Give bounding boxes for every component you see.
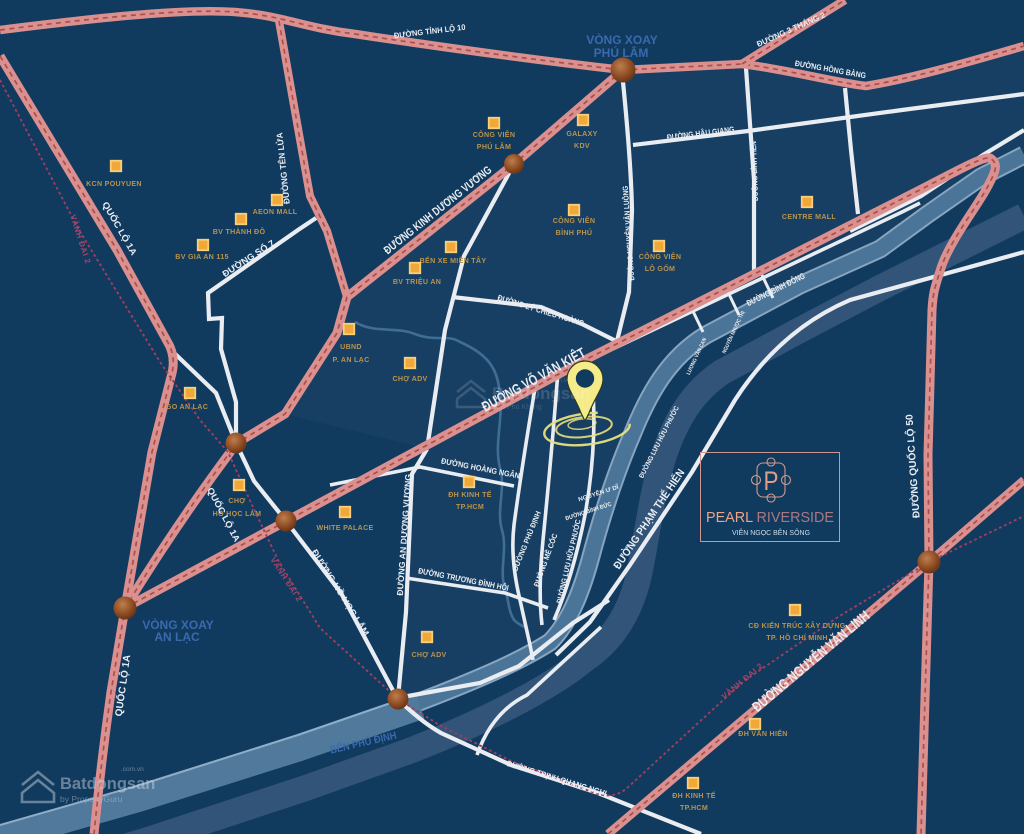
svg-text:UBND: UBND (340, 343, 362, 351)
svg-text:Batdongsan: Batdongsan (60, 775, 155, 793)
svg-text:VIÊN NGỌC BÊN SÔNG: VIÊN NGỌC BÊN SÔNG (732, 528, 810, 537)
svg-text:P. AN LẠC: P. AN LẠC (333, 356, 370, 364)
svg-text:by PropertyGuru: by PropertyGuru (60, 794, 123, 804)
svg-text:ĐH VĂN HIẾN: ĐH VĂN HIẾN (738, 728, 787, 738)
svg-text:BV THÀNH ĐÔ: BV THÀNH ĐÔ (213, 227, 266, 236)
svg-text:BÌNH PHÚ: BÌNH PHÚ (556, 228, 593, 237)
svg-text:LÔ GỐM: LÔ GỐM (645, 263, 676, 273)
svg-text:BV GIA AN 115: BV GIA AN 115 (175, 253, 228, 261)
svg-text:TP.HCM: TP.HCM (680, 804, 708, 812)
svg-text:CÔNG VIÊN: CÔNG VIÊN (553, 216, 596, 225)
svg-text:P: P (764, 466, 779, 496)
svg-text:PEARL RIVERSIDE: PEARL RIVERSIDE (706, 509, 834, 526)
svg-text:.com.vn: .com.vn (121, 766, 144, 773)
svg-text:GALAXY: GALAXY (566, 130, 597, 138)
svg-text:BẾN XE MIỀN TÂY: BẾN XE MIỀN TÂY (420, 255, 487, 265)
svg-text:PHÚ LÂM: PHÚ LÂM (594, 45, 649, 60)
svg-text:CĐ KIẾN TRÚC XÂY DỰNG: CĐ KIẾN TRÚC XÂY DỰNG (748, 620, 845, 630)
svg-text:.com.vn: .com.vn (548, 377, 571, 384)
svg-text:TP.HCM: TP.HCM (456, 503, 484, 511)
svg-text:CHỢ ADV: CHỢ ADV (411, 651, 446, 659)
svg-text:AEON MALL: AEON MALL (253, 208, 298, 216)
svg-text:VÒNG XOAY: VÒNG XOAY (586, 32, 658, 47)
svg-text:KCN POUYUEN: KCN POUYUEN (86, 180, 142, 188)
svg-text:CHỢ ADV: CHỢ ADV (392, 375, 427, 383)
svg-text:WHITE PALACE: WHITE PALACE (316, 524, 373, 532)
svg-text:TP. HỒ CHÍ MINH: TP. HỒ CHÍ MINH (766, 632, 828, 642)
svg-text:CÔNG VIÊN: CÔNG VIÊN (473, 130, 516, 139)
svg-text:ĐH KINH TẾ: ĐH KINH TẾ (672, 790, 716, 800)
svg-text:KDV: KDV (574, 142, 590, 150)
svg-text:Tân Phú Khang: Tân Phú Khang (493, 404, 542, 411)
svg-text:ĐƯỜNG BÌNH TIỀN: ĐƯỜNG BÌNH TIỀN (748, 141, 760, 201)
svg-text:CÔNG VIÊN: CÔNG VIÊN (639, 252, 682, 261)
svg-text:AN LẠC: AN LẠC (154, 630, 200, 644)
svg-text:Batdongsan: Batdongsan (492, 384, 590, 403)
svg-text:BV TRIỆU AN: BV TRIỆU AN (393, 277, 441, 286)
svg-text:CHỢ: CHỢ (228, 497, 246, 505)
svg-text:PHÚ LÂM: PHÚ LÂM (477, 142, 511, 151)
svg-text:CENTRE MALL: CENTRE MALL (782, 213, 837, 221)
svg-text:ĐH KINH TẾ: ĐH KINH TẾ (448, 489, 492, 499)
svg-text:GO AN LẠC: GO AN LẠC (166, 403, 208, 411)
